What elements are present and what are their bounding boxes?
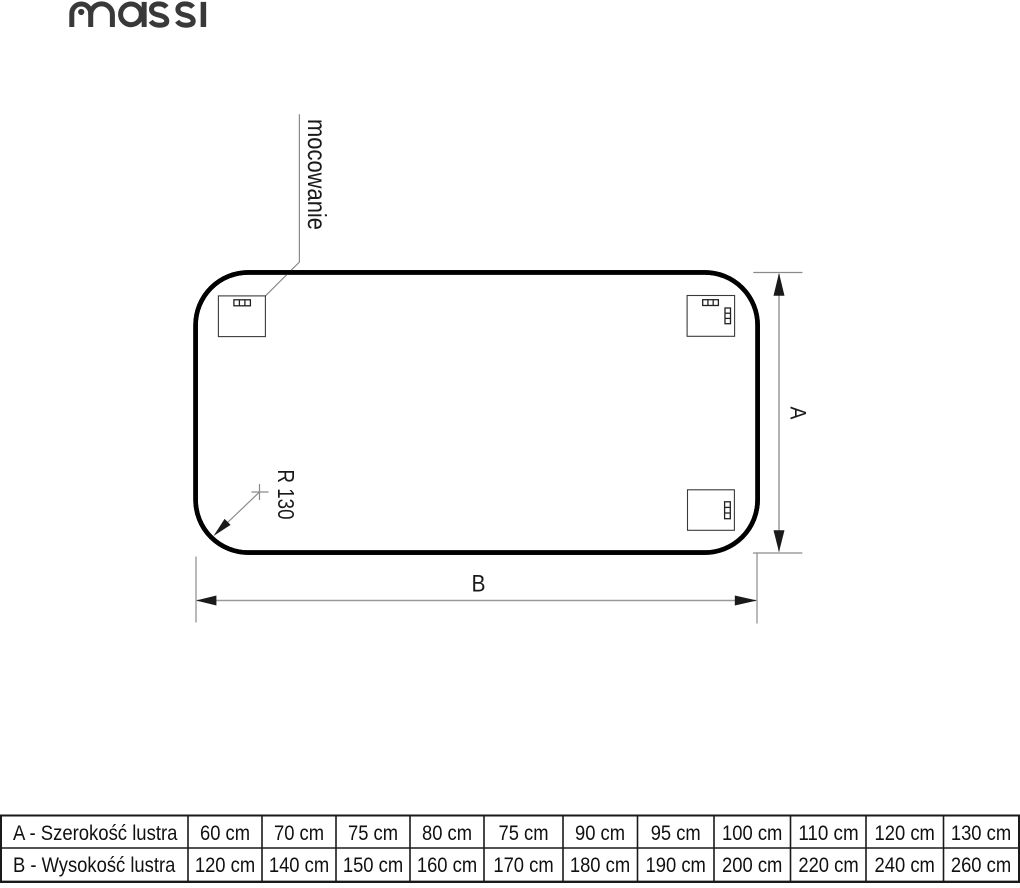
svg-text:220 cm: 220 cm — [798, 854, 858, 877]
svg-text:150 cm: 150 cm — [343, 854, 403, 877]
svg-text:100 cm: 100 cm — [722, 822, 782, 845]
svg-text:A: A — [786, 407, 811, 420]
svg-text:mocowanie: mocowanie — [302, 119, 332, 230]
svg-text:R 130: R 130 — [273, 470, 299, 520]
svg-text:180 cm: 180 cm — [570, 854, 630, 877]
svg-text:60 cm: 60 cm — [200, 822, 250, 845]
svg-text:160 cm: 160 cm — [417, 854, 477, 877]
svg-text:190 cm: 190 cm — [646, 854, 706, 877]
svg-text:110 cm: 110 cm — [798, 822, 858, 845]
svg-text:170 cm: 170 cm — [493, 854, 553, 877]
svg-text:240 cm: 240 cm — [875, 854, 935, 877]
svg-text:260 cm: 260 cm — [951, 854, 1011, 877]
svg-text:B - Wysokość lustra: B - Wysokość lustra — [13, 854, 176, 877]
svg-text:70 cm: 70 cm — [274, 822, 324, 845]
svg-text:140 cm: 140 cm — [269, 854, 329, 877]
svg-text:75 cm: 75 cm — [499, 822, 549, 845]
svg-text:80 cm: 80 cm — [422, 822, 472, 845]
svg-text:200 cm: 200 cm — [722, 854, 782, 877]
svg-text:130 cm: 130 cm — [951, 822, 1011, 845]
svg-text:120 cm: 120 cm — [875, 822, 935, 845]
svg-text:120 cm: 120 cm — [195, 854, 255, 877]
svg-text:75 cm: 75 cm — [348, 822, 398, 845]
svg-text:95 cm: 95 cm — [651, 822, 701, 845]
svg-text:A - Szerokość lustra: A - Szerokość lustra — [13, 822, 178, 845]
svg-text:B: B — [472, 571, 486, 598]
svg-text:90 cm: 90 cm — [575, 822, 625, 845]
